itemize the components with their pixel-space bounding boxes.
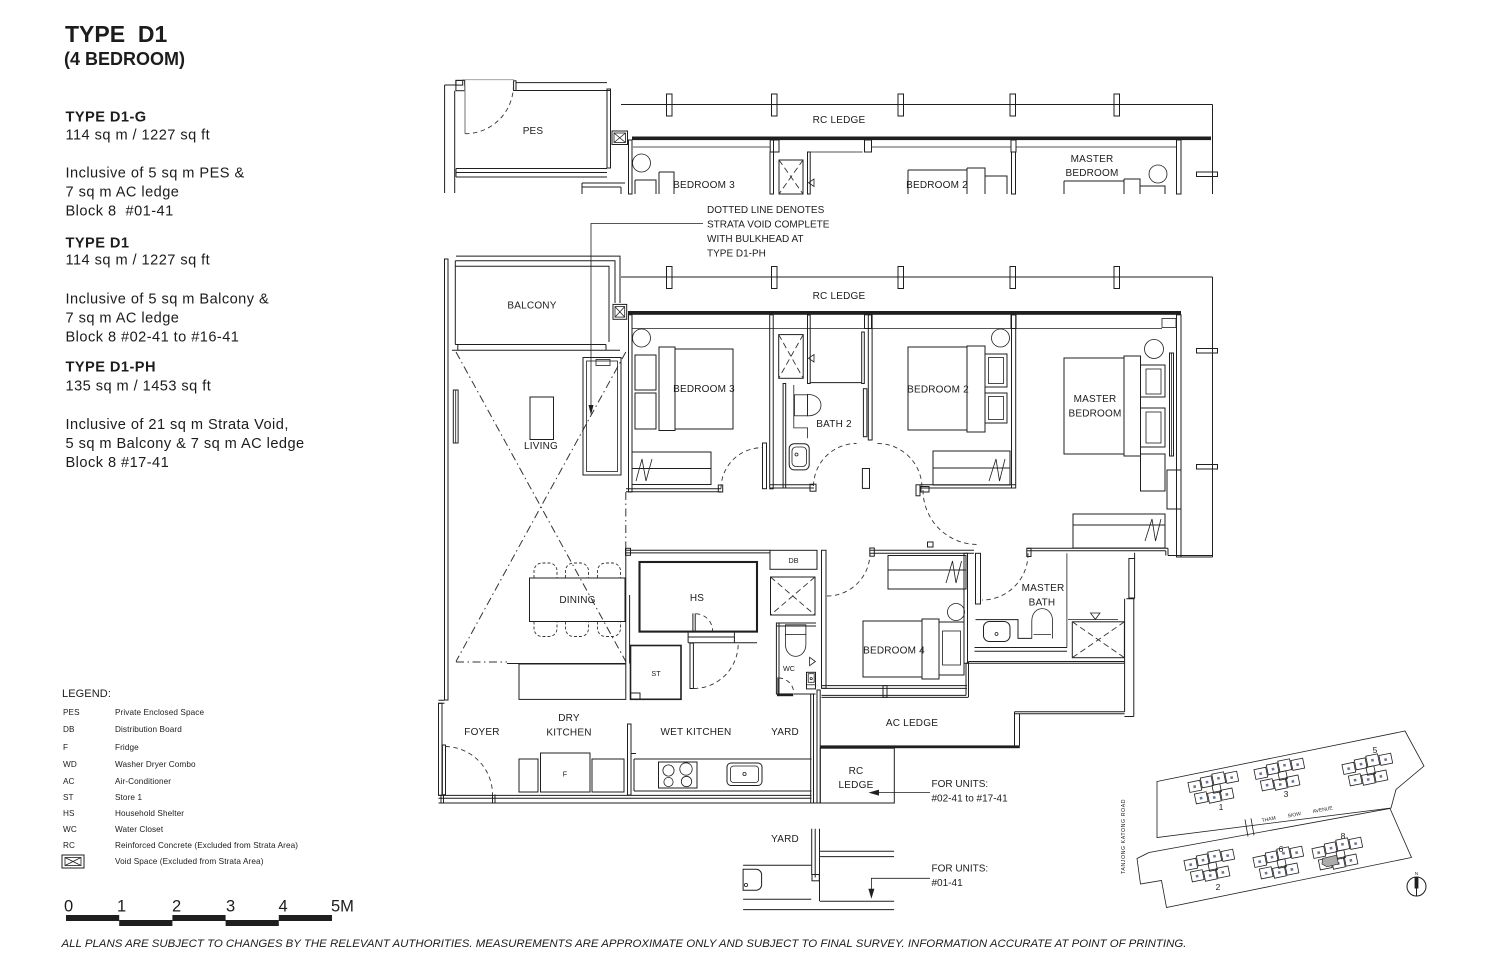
svg-text:Block 8 #17-41: Block 8 #17-41 [66, 455, 170, 471]
svg-text:5M: 5M [331, 898, 354, 916]
svg-text:BATH 2: BATH 2 [816, 419, 852, 430]
svg-text:PES: PES [523, 126, 544, 137]
svg-text:Store 1: Store 1 [115, 793, 142, 802]
svg-text:BEDROOM 4: BEDROOM 4 [863, 646, 925, 657]
svg-text:PES: PES [63, 708, 80, 717]
svg-text:Inclusive of 5 sq m PES &: Inclusive of 5 sq m PES & [66, 166, 245, 182]
svg-text:ALL PLANS ARE SUBJECT TO CHANG: ALL PLANS ARE SUBJECT TO CHANGES BY THE … [61, 938, 1187, 950]
svg-text:Block 8 #02-41 to #16-41: Block 8 #02-41 to #16-41 [66, 330, 240, 346]
svg-text:AC: AC [63, 777, 75, 786]
svg-text:LIVING: LIVING [524, 441, 558, 452]
svg-text:KITCHEN: KITCHEN [546, 728, 591, 739]
svg-text:Distribution Board: Distribution Board [115, 725, 182, 734]
svg-text:BEDROOM 2: BEDROOM 2 [907, 385, 969, 396]
svg-text:AC LEDGE: AC LEDGE [886, 718, 938, 729]
svg-text:114 sq m / 1227 sq ft: 114 sq m / 1227 sq ft [66, 128, 211, 144]
svg-text:RC: RC [849, 766, 864, 777]
svg-text:YARD: YARD [771, 834, 799, 845]
svg-text:Air-Conditioner: Air-Conditioner [115, 777, 171, 786]
svg-text:MASTER: MASTER [1074, 394, 1117, 405]
svg-text:6: 6 [1279, 844, 1284, 854]
svg-text:HS: HS [63, 809, 75, 818]
svg-text:2: 2 [1216, 882, 1221, 892]
svg-text:114 sq m / 1227 sq ft: 114 sq m / 1227 sq ft [66, 253, 211, 269]
svg-text:N: N [1415, 871, 1418, 876]
svg-text:1: 1 [1219, 802, 1224, 812]
svg-text:Private Enclosed Space: Private Enclosed Space [115, 708, 204, 717]
svg-text:(4 BEDROOM): (4 BEDROOM) [64, 49, 185, 69]
svg-text:WD: WD [63, 760, 77, 769]
svg-text:Void Space (Excluded from Stra: Void Space (Excluded from Strata Area) [115, 857, 264, 866]
svg-text:ST: ST [651, 669, 661, 678]
svg-text:F: F [63, 743, 68, 752]
svg-text:ST: ST [63, 793, 74, 802]
svg-text:WET KITCHEN: WET KITCHEN [661, 727, 732, 738]
svg-text:TYPE D1-G: TYPE D1-G [66, 110, 147, 126]
svg-text:DRY: DRY [558, 713, 580, 724]
svg-text:1: 1 [117, 898, 126, 916]
svg-text:5 sq m Balcony & 7 sq m AC led: 5 sq m Balcony & 7 sq m AC ledge [66, 436, 305, 452]
svg-text:#02-41 to #17-41: #02-41 to #17-41 [932, 794, 1009, 805]
svg-text:Inclusive of 5 sq m Balcony &: Inclusive of 5 sq m Balcony & [66, 292, 270, 308]
svg-text:RC LEDGE: RC LEDGE [813, 291, 866, 302]
svg-text:TYPE D1-PH: TYPE D1-PH [66, 360, 156, 376]
svg-text:YARD: YARD [771, 727, 799, 738]
svg-text:Fridge: Fridge [115, 743, 139, 752]
svg-text:BEDROOM: BEDROOM [1068, 409, 1121, 420]
svg-text:FOYER: FOYER [464, 727, 499, 738]
svg-text:DINING: DINING [559, 595, 595, 606]
svg-text:MASTER: MASTER [1022, 583, 1065, 594]
svg-text:3: 3 [1284, 789, 1289, 799]
svg-text:BEDROOM: BEDROOM [1065, 168, 1118, 179]
svg-text:MASTER: MASTER [1071, 154, 1114, 165]
svg-text:FOR UNITS:: FOR UNITS: [932, 864, 989, 875]
svg-text:LEGEND:: LEGEND: [62, 688, 111, 700]
svg-text:STRATA VOID COMPLETE: STRATA VOID COMPLETE [707, 220, 830, 231]
svg-text:Water Closet: Water Closet [115, 825, 164, 834]
svg-text:Washer Dryer Combo: Washer Dryer Combo [115, 760, 196, 769]
svg-text:Inclusive of 21 sq m Strata Vo: Inclusive of 21 sq m Strata Void, [66, 417, 289, 433]
svg-text:7 sq m AC ledge: 7 sq m AC ledge [66, 311, 180, 327]
svg-text:3: 3 [226, 898, 235, 916]
svg-text:Block 8 #01-41: Block 8 #01-41 [66, 204, 174, 220]
svg-text:TYPE D1: TYPE D1 [65, 21, 167, 47]
svg-text:Household Shelter: Household Shelter [115, 809, 184, 818]
svg-text:WC: WC [63, 825, 77, 834]
svg-text:#01-41: #01-41 [932, 878, 964, 889]
svg-text:RC LEDGE: RC LEDGE [813, 115, 866, 126]
svg-text:F: F [563, 770, 568, 779]
svg-text:0: 0 [64, 898, 73, 916]
svg-text:8: 8 [1341, 831, 1346, 841]
svg-text:Reinforced Concrete (Excluded: Reinforced Concrete (Excluded from Strat… [115, 841, 298, 850]
svg-text:7 sq m AC ledge: 7 sq m AC ledge [66, 185, 180, 201]
svg-text:LEDGE: LEDGE [839, 780, 874, 791]
svg-text:WITH BULKHEAD AT: WITH BULKHEAD AT [707, 234, 804, 245]
svg-text:BEDROOM 3: BEDROOM 3 [673, 180, 735, 191]
svg-text:5: 5 [1373, 745, 1378, 755]
svg-text:DB: DB [789, 556, 799, 565]
svg-text:BEDROOM 3: BEDROOM 3 [673, 384, 735, 395]
svg-text:HS: HS [690, 593, 704, 604]
svg-text:4: 4 [279, 898, 288, 916]
svg-text:BATH: BATH [1029, 598, 1056, 609]
svg-text:WC: WC [783, 664, 795, 673]
svg-text:BALCONY: BALCONY [507, 301, 556, 312]
svg-text:FOR UNITS:: FOR UNITS: [932, 779, 989, 790]
svg-text:TYPE D1-PH: TYPE D1-PH [707, 249, 766, 260]
svg-text:TANJONG KATONG ROAD: TANJONG KATONG ROAD [1121, 799, 1127, 874]
svg-text:BEDROOM 2: BEDROOM 2 [906, 180, 968, 191]
svg-text:135 sq m / 1453 sq ft: 135 sq m / 1453 sq ft [66, 379, 212, 395]
svg-text:2: 2 [172, 898, 181, 916]
svg-text:DB: DB [63, 725, 75, 734]
svg-text:RC: RC [63, 841, 75, 850]
svg-text:DOTTED LINE DENOTES: DOTTED LINE DENOTES [707, 205, 825, 216]
svg-text:TYPE D1: TYPE D1 [66, 236, 130, 252]
